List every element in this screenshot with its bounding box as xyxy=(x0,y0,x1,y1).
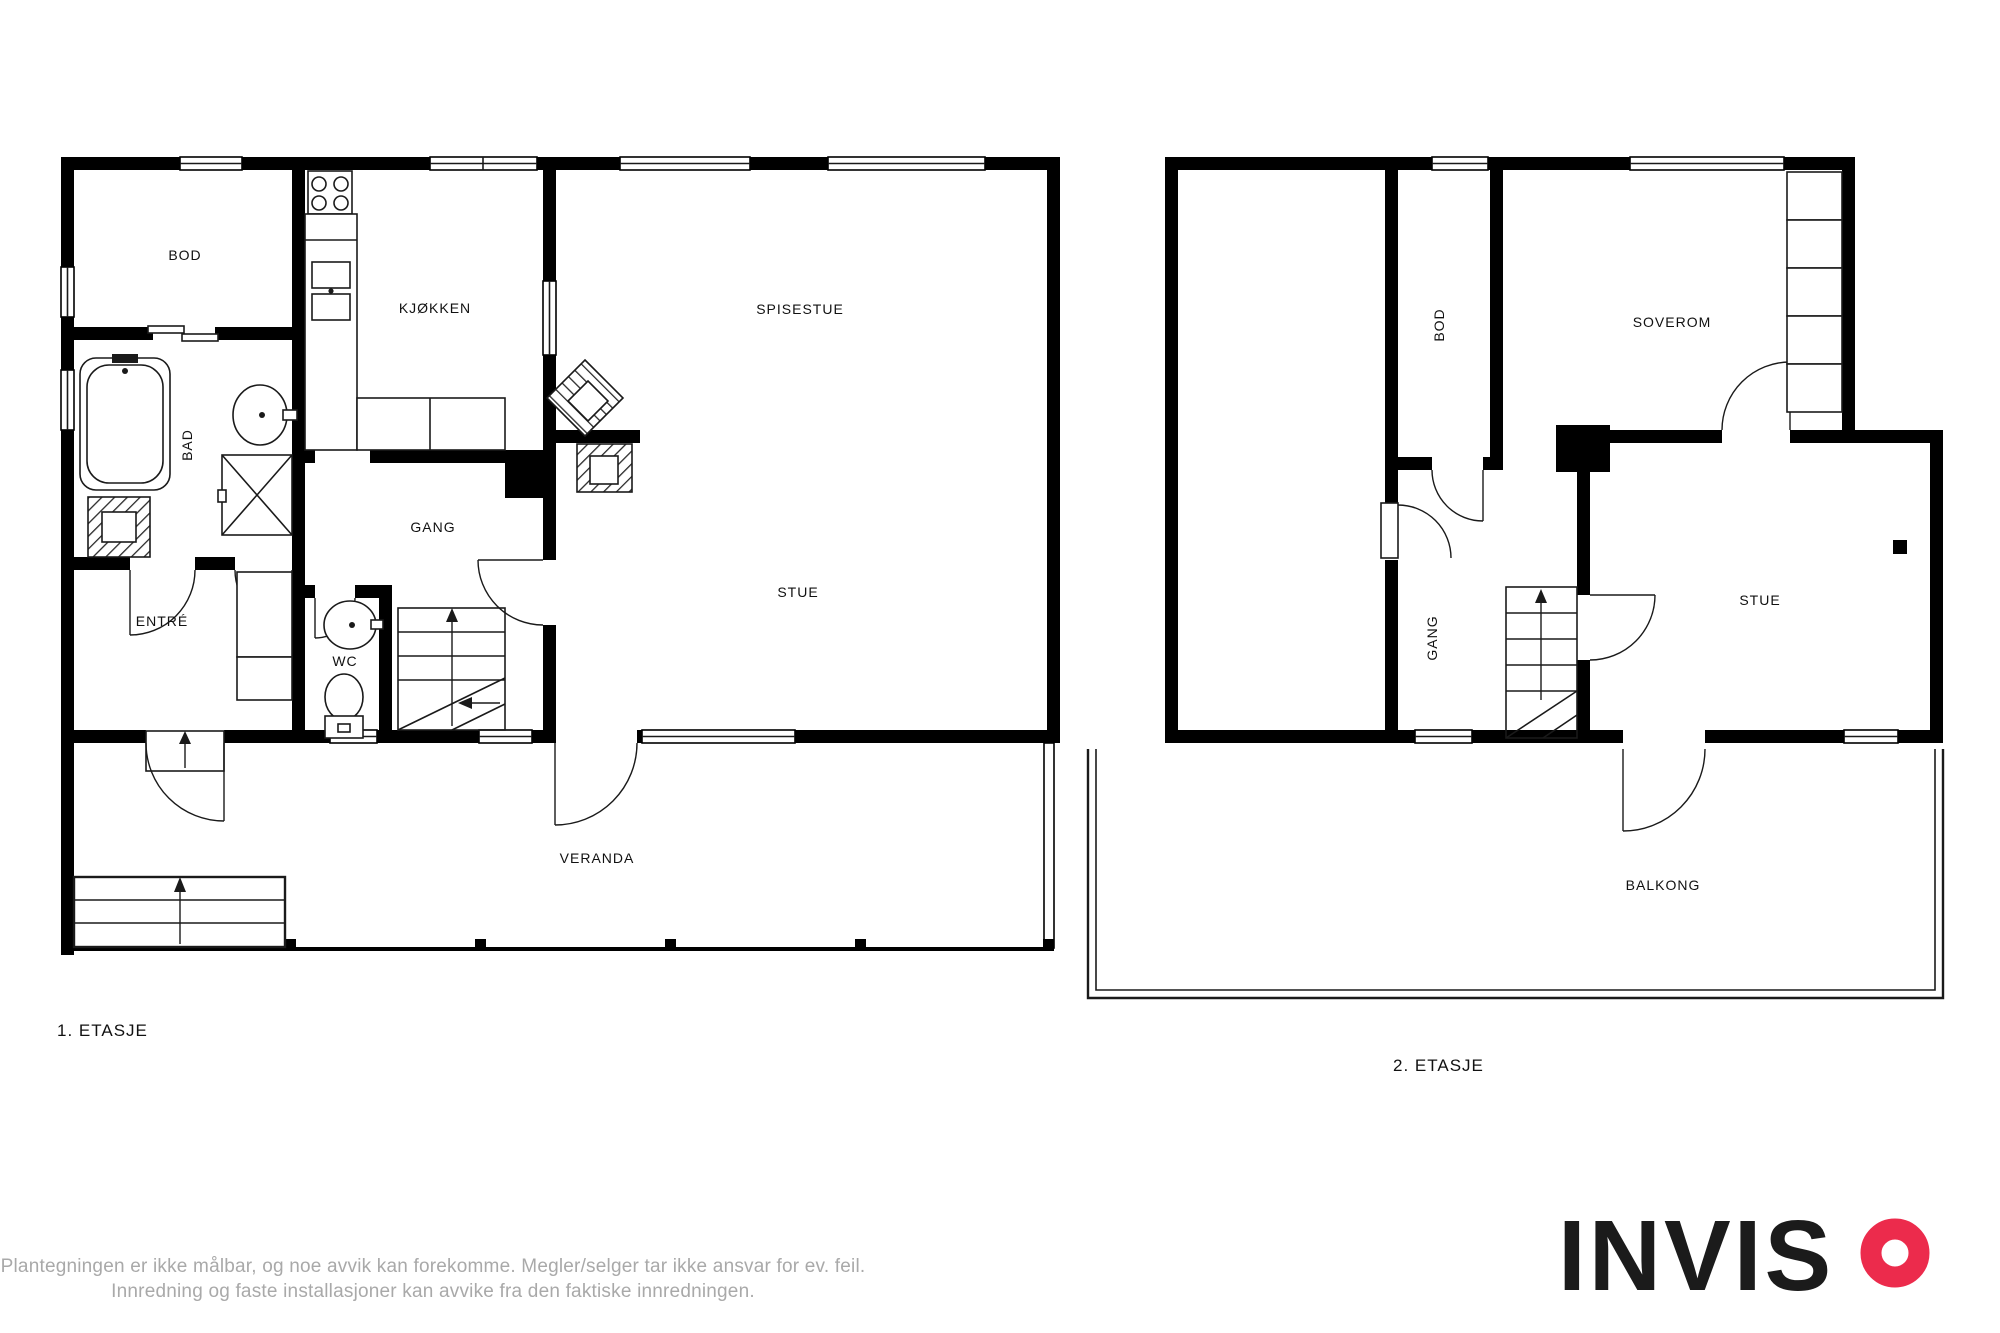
floor-plan-2: BOD SOVEROM GANG STUE BALKONG 2. ETASJE xyxy=(1088,157,1943,1075)
room-label-kjokken: KJØKKEN xyxy=(399,300,471,316)
chimney-shaft-bad xyxy=(88,497,150,557)
room-label-stue-1: STUE xyxy=(777,584,818,600)
room-label-bad: BAD xyxy=(179,429,195,461)
room-label-entre: ENTRÉ xyxy=(136,613,188,629)
room-label-balkong: BALKONG xyxy=(1626,877,1701,893)
toilet xyxy=(325,674,363,738)
room-label-gang-1: GANG xyxy=(410,519,455,535)
door-bod-2 xyxy=(1432,470,1483,521)
stove xyxy=(308,171,352,214)
floorplan-canvas: BOD KJØKKEN SPISESTUE BAD GANG STUE ENTR… xyxy=(0,0,2000,1333)
room-label-spisestue: SPISESTUE xyxy=(756,301,844,317)
door-stue-2 xyxy=(1590,595,1655,660)
soverom-wardrobe xyxy=(1787,172,1842,412)
veranda-structure xyxy=(61,743,1054,955)
disclaimer-block: Plantegningen er ikke målbar, og noe avv… xyxy=(1,1256,866,1302)
window xyxy=(620,157,750,170)
door-gang-left xyxy=(1381,503,1451,558)
disclaimer-line-2: Innredning og faste installasjoner kan a… xyxy=(111,1281,755,1302)
wc-fixtures xyxy=(324,601,383,738)
window xyxy=(1432,157,1488,170)
shower xyxy=(218,455,292,535)
walls-floor-1 xyxy=(61,157,1060,743)
room-label-wc: WC xyxy=(332,653,357,669)
entrance-door xyxy=(146,731,224,821)
window xyxy=(1844,730,1898,743)
window xyxy=(61,267,74,317)
room-label-gang-2: GANG xyxy=(1424,615,1440,660)
stairs-first-floor xyxy=(398,608,505,730)
room-label-soverom: SOVEROM xyxy=(1633,314,1712,330)
washbasin-bad xyxy=(233,385,297,445)
window xyxy=(1415,730,1472,743)
window xyxy=(642,730,795,743)
inviso-logo: INVIS xyxy=(1558,1200,1919,1312)
bathtub xyxy=(80,354,170,490)
floor-plan-1: BOD KJØKKEN SPISESTUE BAD GANG STUE ENTR… xyxy=(57,157,1060,1040)
entre-wardrobe xyxy=(237,572,292,700)
veranda-door-stue xyxy=(555,743,637,825)
window xyxy=(180,157,242,170)
window xyxy=(828,157,985,170)
inviso-logo-o-icon xyxy=(1871,1229,1919,1277)
room-label-stue-2: STUE xyxy=(1739,592,1780,608)
floor-title-1: 1. ETASJE xyxy=(57,1021,148,1040)
window xyxy=(479,730,532,743)
inviso-wordmark: INVIS xyxy=(1558,1200,1834,1312)
floorplan-page: BOD KJØKKEN SPISESTUE BAD GANG STUE ENTR… xyxy=(0,0,2000,1333)
balcony-door xyxy=(1623,749,1705,831)
floor-title-2: 2. ETASJE xyxy=(1393,1056,1484,1075)
room-label-bod-1: BOD xyxy=(168,247,201,263)
room-label-veranda: VERANDA xyxy=(560,850,635,866)
door-stue xyxy=(478,560,543,625)
window xyxy=(61,370,74,430)
disclaimer-line-1: Plantegningen er ikke målbar, og noe avv… xyxy=(1,1256,866,1277)
washbasin-wc xyxy=(324,601,383,649)
labels-floor-1: BOD KJØKKEN SPISESTUE BAD GANG STUE ENTR… xyxy=(57,247,844,1040)
fireplace xyxy=(547,360,632,492)
interior-window xyxy=(543,281,556,355)
kitchen-counter xyxy=(305,214,505,450)
window xyxy=(1630,157,1784,170)
balcony-structure xyxy=(1088,749,1943,998)
chimney-stue-2 xyxy=(1893,540,1907,554)
room-label-bod-2: BOD xyxy=(1431,308,1447,341)
outdoor-stairs xyxy=(74,877,285,947)
stairs-second-floor xyxy=(1506,587,1577,738)
window xyxy=(430,157,537,170)
sliding-door-bod-bad xyxy=(148,326,218,341)
door-soverom xyxy=(1722,362,1790,430)
